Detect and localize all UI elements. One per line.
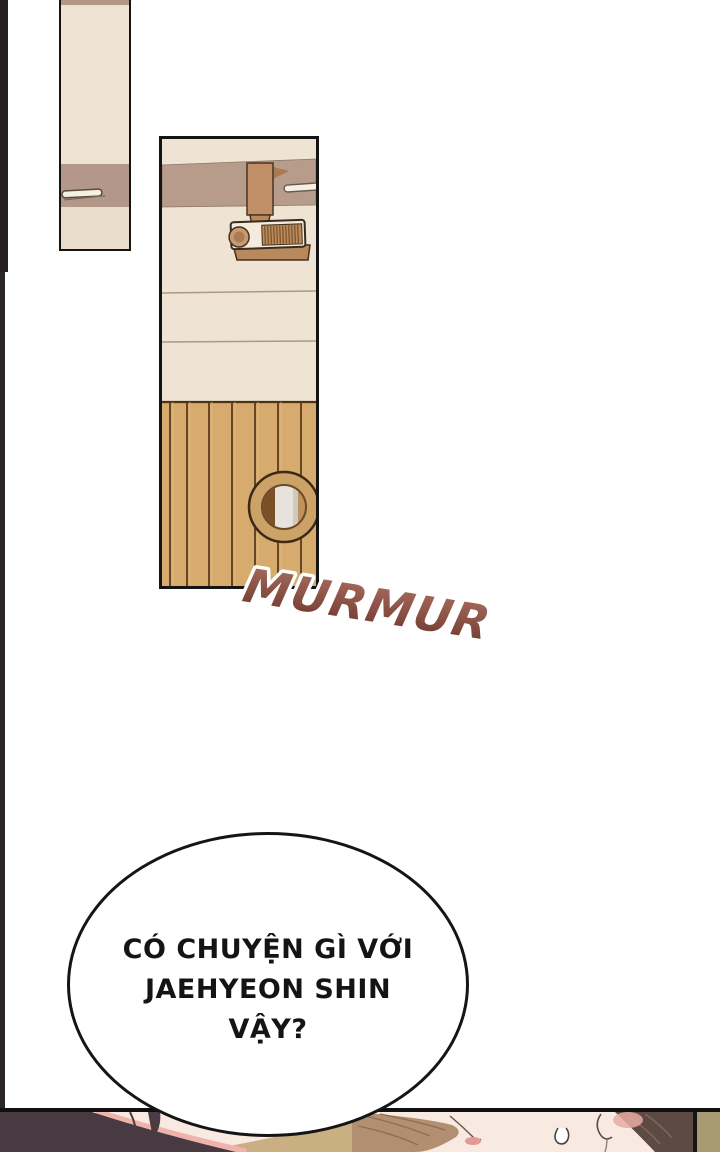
- ear-blush: [613, 1112, 643, 1128]
- speech-line-2: JAEHYEON SHIN: [145, 970, 391, 1010]
- speech-line-1: CÓ CHUYỆN GÌ VỚI: [123, 930, 414, 970]
- comic-page: MURMUR: [0, 0, 720, 1152]
- sfx-murmur-text: MURMUR: [238, 559, 496, 651]
- narrow-wall-art: [61, 0, 129, 249]
- nose-tip-blush: [465, 1137, 481, 1145]
- speech-line-3: VẬY?: [228, 1010, 307, 1050]
- right-wall-edge: [693, 1112, 697, 1152]
- bathroom-art: [162, 139, 316, 586]
- sweat-drop-icon: [555, 1128, 569, 1144]
- wall-lower: [61, 207, 129, 249]
- sfx-murmur: MURMUR: [228, 522, 490, 667]
- wall-upper: [61, 5, 129, 164]
- projector-body: [229, 220, 306, 250]
- bathroom-wall-band: [162, 159, 316, 207]
- panel-narrow-wall: [59, 0, 131, 251]
- projector-mount: [247, 163, 273, 215]
- wall-band-top: [61, 0, 129, 5]
- page-edge-strip-bottom: [0, 272, 5, 1110]
- page-edge-strip-top: [0, 0, 8, 272]
- right-wall-strip: [697, 1112, 720, 1152]
- wall-band-mid: [61, 164, 129, 207]
- speech-bubble: CÓ CHUYỆN GÌ VỚI JAEHYEON SHIN VẬY?: [67, 832, 469, 1137]
- panel-bathroom: [159, 136, 319, 589]
- wall-seam-lower: [162, 341, 316, 342]
